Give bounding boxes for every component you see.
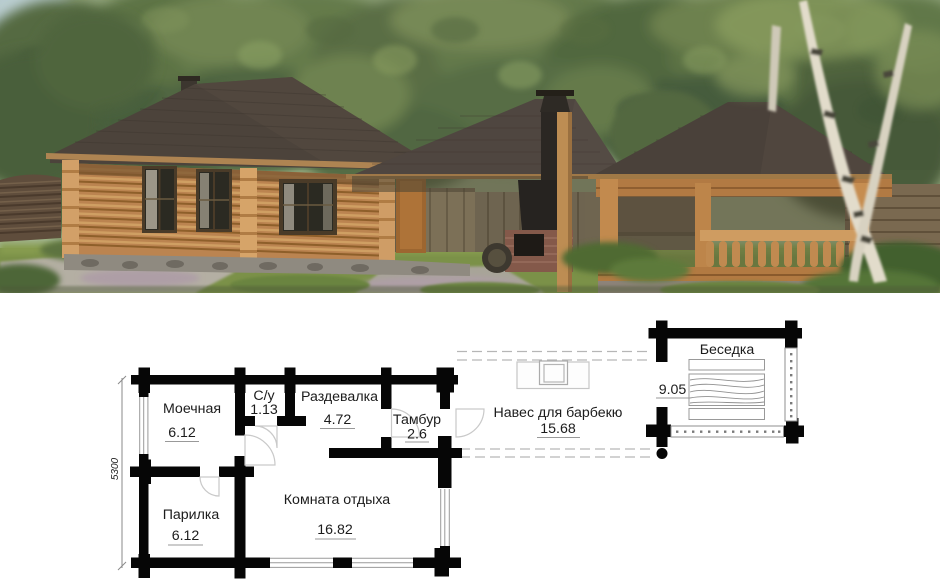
svg-text:Моечная: Моечная	[163, 401, 221, 417]
svg-text:Парилка: Парилка	[163, 507, 220, 523]
svg-text:5300: 5300	[110, 457, 121, 480]
svg-text:16.82: 16.82	[317, 522, 353, 538]
svg-text:15.68: 15.68	[540, 421, 576, 437]
svg-text:4.72: 4.72	[324, 412, 352, 428]
svg-text:Навес для барбекю: Навес для барбекю	[494, 405, 623, 421]
svg-text:9.05: 9.05	[659, 382, 687, 398]
svg-text:6.12: 6.12	[168, 425, 196, 441]
svg-text:6.12: 6.12	[172, 528, 200, 544]
svg-text:Комната отдыха: Комната отдыха	[284, 492, 391, 508]
svg-text:2.6: 2.6	[407, 427, 427, 443]
svg-text:1.13: 1.13	[250, 402, 278, 418]
svg-text:Беседка: Беседка	[700, 342, 755, 358]
svg-text:Раздевалка: Раздевалка	[301, 389, 378, 405]
